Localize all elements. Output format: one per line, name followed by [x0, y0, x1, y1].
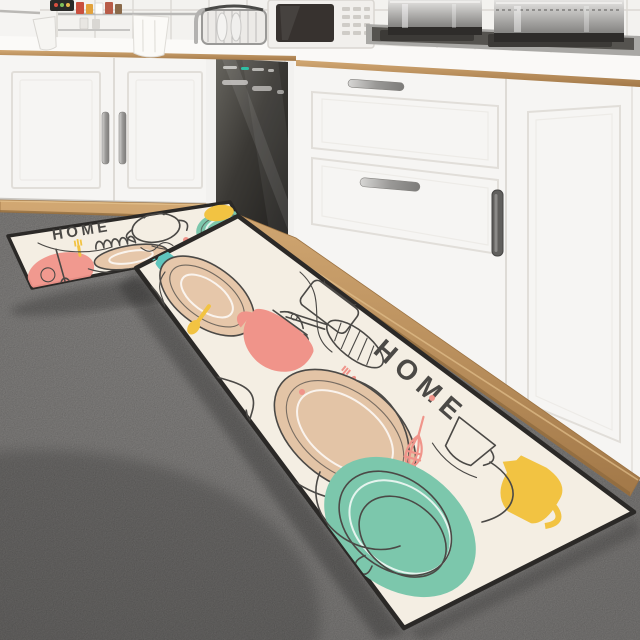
- stock-pot-left: [388, 0, 482, 35]
- plate-in-rack: [217, 13, 227, 41]
- plate-in-rack: [231, 13, 241, 41]
- dishwasher-handle: [252, 86, 272, 91]
- hanging-towel: [131, 15, 169, 58]
- scene-canvas: HOME: [0, 0, 640, 640]
- left-cabinets: [0, 54, 212, 204]
- door-handle: [119, 112, 126, 164]
- dishwasher-handle: [222, 80, 248, 85]
- door-handle: [102, 112, 109, 164]
- dish-rack: [202, 6, 266, 44]
- microwave: [268, 0, 374, 48]
- kitchen-photo: HOME: [0, 0, 640, 640]
- stock-pot-right: [494, 0, 624, 42]
